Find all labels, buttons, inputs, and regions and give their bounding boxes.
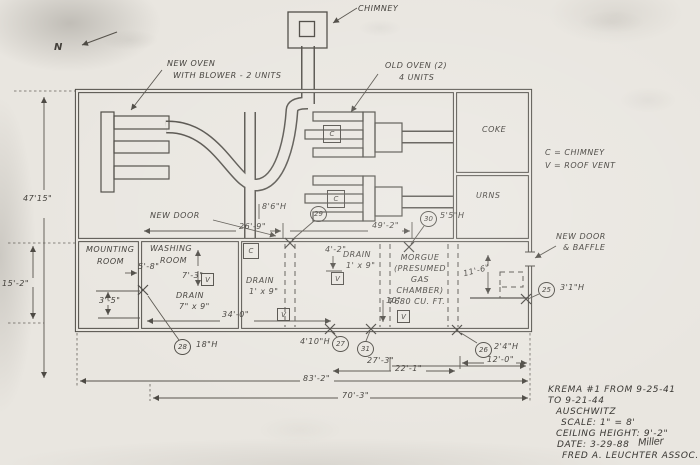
sample-marker-25: 25	[538, 282, 555, 298]
dim-5-8: 5'-8"	[138, 262, 159, 271]
morgue-label-2: (PRESUMED	[385, 264, 455, 273]
legend-chimney: C = CHIMNEY	[545, 148, 605, 157]
sample-marker-27: 27	[332, 336, 349, 352]
dim-34-0: 34'-0"	[222, 310, 249, 319]
washing-room-label-1: WASHING	[150, 244, 192, 253]
dim-10in: 10"	[386, 296, 401, 305]
dim-15-2: 15'-2"	[2, 279, 29, 288]
dim-8-6h: 8'6"H	[262, 202, 287, 211]
urns-room-label: URNS	[476, 191, 500, 200]
title-block-line-2: TO 9-21-44	[548, 396, 605, 406]
old-ovens-outline	[305, 112, 402, 221]
sample-marker-29: 29	[310, 206, 327, 222]
dim-27-3: 27'-3"	[367, 356, 394, 365]
dim-4-10h: 4'10"H	[300, 337, 330, 346]
morgue-label-1: MORGUE	[385, 253, 455, 262]
new-door-label: NEW DOOR	[150, 211, 200, 220]
dim-3-1h: 3'1"H	[560, 283, 585, 292]
dim-2-4h: 2'4"H	[494, 342, 519, 351]
old-oven-label-1: OLD OVEN (2)	[385, 61, 447, 70]
coke-room-label: COKE	[482, 125, 506, 134]
dim-70-3: 70'-3"	[342, 391, 369, 400]
roof-vent-symbol: V	[277, 308, 290, 321]
sample-marker-30: 30	[420, 211, 437, 227]
new-oven-label-2: WITH BLOWER - 2 UNITS	[173, 71, 282, 80]
legend-roof-vent: V = ROOF VENT	[545, 161, 615, 170]
morgue-drain-label-2: 1' x 9"	[346, 261, 375, 270]
scanned-drawing: CHIMNEY N NEW OVEN WITH BLOWER - 2 UNITS…	[0, 0, 700, 465]
mid-drain-label-1: DRAIN	[246, 276, 274, 285]
title-block-line-1: KREMA #1 FROM 9-25-41	[548, 385, 676, 395]
dim-3-5: 3'-5"	[99, 296, 120, 305]
signature: Miller	[638, 436, 664, 449]
dim-12-0: 12'-0"	[487, 355, 514, 364]
chimney-symbol: C	[327, 190, 345, 208]
dim-18h: 18"H	[196, 340, 218, 349]
north-label: N	[54, 42, 63, 53]
baffle-label-1: NEW DOOR	[556, 232, 606, 241]
dim-49-2: 49'-2"	[372, 221, 399, 230]
mounting-room-label-2: ROOM	[97, 257, 124, 266]
washing-drain-label-2: 7" x 9"	[179, 302, 210, 311]
old-oven-label-2: 4 UNITS	[399, 73, 434, 82]
morgue-label-4: CHAMBER)	[385, 286, 455, 295]
morgue-drain-label-1: DRAIN	[343, 250, 371, 259]
title-block-line-3: AUSCHWITZ	[556, 407, 616, 417]
chimney-structure	[288, 12, 327, 48]
chimney-symbol: C	[323, 125, 341, 143]
baffle-label-2: & BAFFLE	[563, 243, 605, 252]
new-oven-label-1: NEW OVEN	[167, 59, 215, 68]
washing-room-label-2: ROOM	[160, 256, 187, 265]
chimney-symbol: C	[243, 243, 259, 259]
mid-drain-label-2: 1' x 9"	[249, 287, 278, 296]
dim-22-1: 22'-1"	[395, 364, 422, 373]
new-oven-outline	[101, 112, 169, 192]
title-block-line-7: FRED A. LEUCHTER ASSOC. IN.	[562, 451, 700, 461]
roof-vent-symbol: V	[331, 272, 344, 285]
chimney-label: CHIMNEY	[358, 4, 398, 13]
roof-vent-symbol: V	[201, 273, 214, 286]
sample-marker-28: 28	[174, 339, 191, 355]
mounting-room-label-1: MOUNTING	[86, 245, 134, 254]
morgue-label-3: GAS	[385, 275, 455, 284]
sample-marker-26: 26	[475, 342, 492, 358]
sample-marker-31: 31	[357, 341, 374, 357]
title-block-line-4: SCALE: 1" = 8'	[561, 418, 635, 428]
roof-vent-symbol: V	[397, 310, 410, 323]
washing-drain-label-1: DRAIN	[176, 291, 204, 300]
dim-26-9: 26'-9"	[239, 222, 266, 231]
dim-5-5h: 5'5"H	[440, 211, 465, 220]
dim-83-2: 83'-2"	[303, 374, 330, 383]
title-block-line-6: DATE: 3-29-88	[557, 440, 629, 450]
dim-47ft: 47'15"	[23, 194, 52, 203]
